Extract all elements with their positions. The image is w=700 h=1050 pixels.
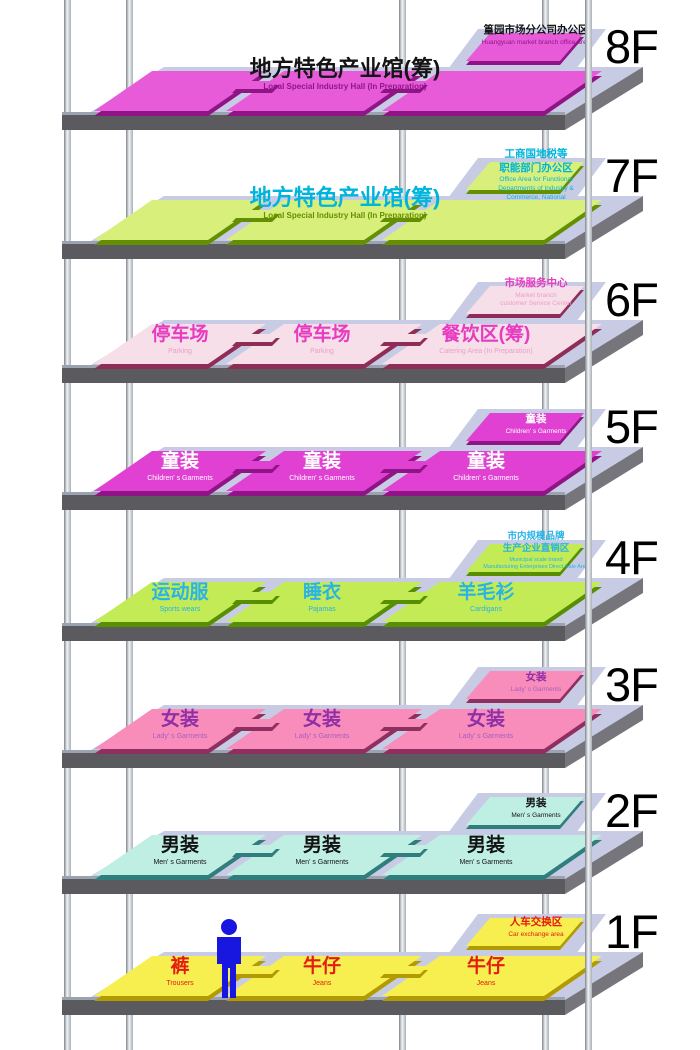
floor-number: 6F	[605, 272, 658, 327]
floor-number: 2F	[605, 783, 658, 838]
floor-3f: 女装 Lady' s Garments 女装 Lady' s Garments …	[0, 655, 700, 790]
floor-1f: 裤 Trousers 牛仔 Jeans 牛仔 Jeans 人车交换区 Car e…	[0, 902, 700, 1037]
floor-number: 3F	[605, 657, 658, 712]
floor-deck-graphic	[0, 528, 700, 663]
floor-2f: 男装 Men' s Garments 男装 Men' s Garments 男装…	[0, 781, 700, 916]
floor-6f: 停车场 Parking 停车场 Parking 餐饮区(筹) Catering …	[0, 270, 700, 405]
floor-4f: 运动服 Sports wears 睡衣 Pajamas 羊毛衫 Cardigan…	[0, 528, 700, 663]
floor-deck-graphic	[0, 655, 700, 790]
floor-deck-graphic	[0, 397, 700, 532]
floor-number: 7F	[605, 148, 658, 203]
floor-deck-graphic	[0, 146, 700, 281]
floor-8f: 地方特色产业馆(筹) Local Special Industry Hall (…	[0, 17, 700, 152]
floor-number: 4F	[605, 530, 658, 585]
floor-deck-graphic	[0, 902, 700, 1037]
floor-deck-graphic	[0, 781, 700, 916]
floor-deck-graphic	[0, 17, 700, 152]
floor-7f: 地方特色产业馆(筹) Local Special Industry Hall (…	[0, 146, 700, 281]
floor-number: 1F	[605, 904, 658, 959]
column-post	[585, 0, 592, 1050]
floor-deck-graphic	[0, 270, 700, 405]
person-icon	[208, 918, 250, 1007]
floor-number: 8F	[605, 19, 658, 74]
floor-number: 5F	[605, 399, 658, 454]
building-floor-directory: 地方特色产业馆(筹) Local Special Industry Hall (…	[0, 0, 700, 1050]
floor-5f: 童装 Children' s Garments 童装 Children' s G…	[0, 397, 700, 532]
